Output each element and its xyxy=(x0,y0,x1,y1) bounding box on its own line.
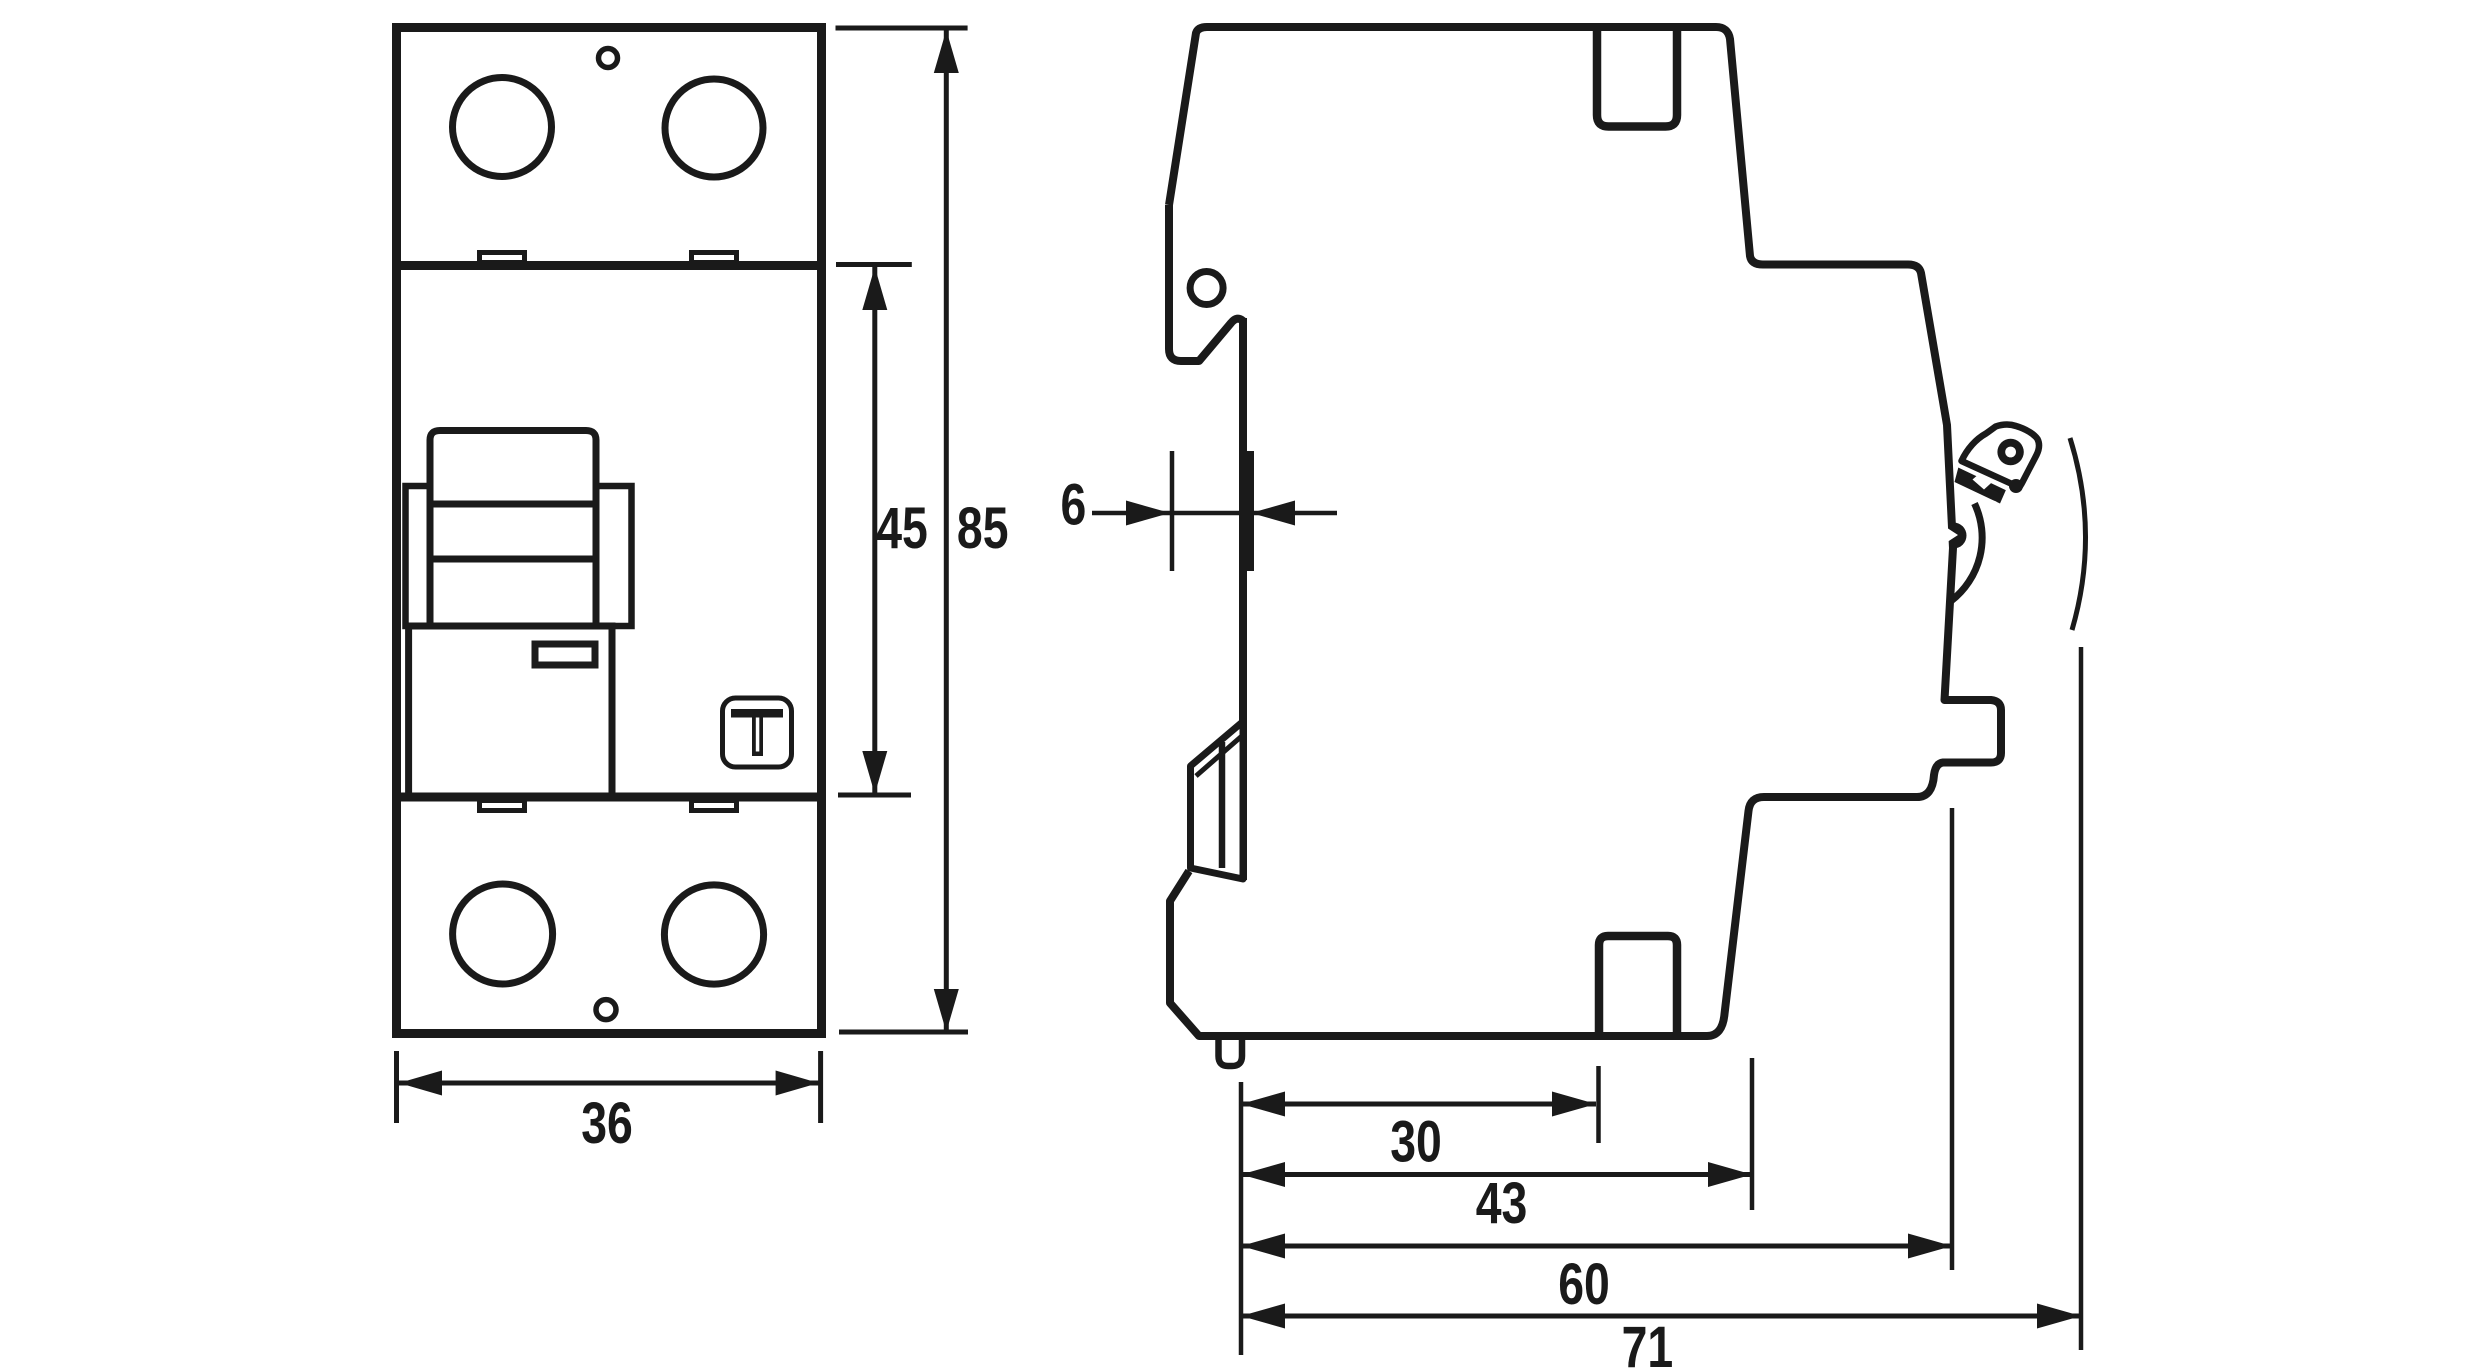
svg-text:71: 71 xyxy=(1622,1315,1674,1372)
svg-text:60: 60 xyxy=(1558,1252,1610,1317)
svg-text:43: 43 xyxy=(1476,1171,1528,1236)
svg-text:45: 45 xyxy=(876,496,928,561)
svg-text:36: 36 xyxy=(581,1091,633,1156)
svg-text:85: 85 xyxy=(957,496,1009,561)
svg-text:6: 6 xyxy=(1060,473,1086,538)
svg-text:30: 30 xyxy=(1390,1109,1442,1174)
